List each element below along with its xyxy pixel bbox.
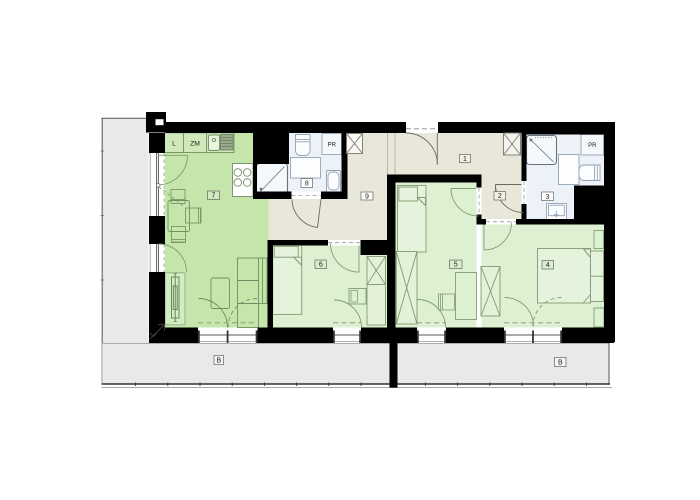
svg-text:ZM: ZM [190, 141, 200, 148]
svg-text:4: 4 [546, 262, 550, 269]
svg-text:3: 3 [546, 194, 550, 201]
svg-text:6: 6 [319, 262, 323, 269]
svg-text:PR: PR [328, 143, 337, 149]
svg-text:5: 5 [454, 262, 458, 269]
svg-text:B: B [216, 358, 221, 365]
svg-text:9: 9 [365, 194, 369, 201]
svg-text:8: 8 [305, 181, 309, 188]
svg-text:B: B [558, 360, 563, 367]
svg-text:2: 2 [498, 193, 502, 200]
svg-text:7: 7 [212, 193, 216, 200]
svg-text:L: L [172, 141, 176, 148]
svg-text:PR: PR [588, 143, 597, 149]
svg-text:1: 1 [463, 156, 467, 163]
